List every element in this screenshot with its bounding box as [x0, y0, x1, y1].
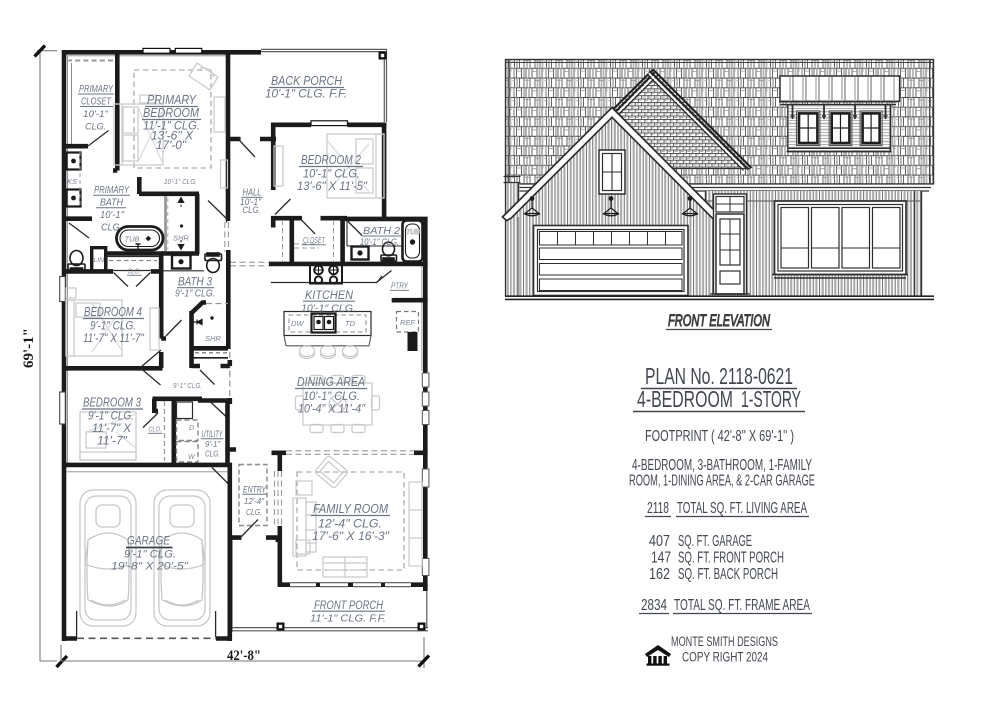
svg-text:10'-4" X 11'-4": 10'-4" X 11'-4" [298, 404, 366, 416]
svg-text:BATH 2: BATH 2 [363, 225, 400, 237]
svg-text:CLO.: CLO. [149, 427, 162, 434]
svg-text:9'-1" CLG.: 9'-1" CLG. [90, 321, 136, 333]
svg-text:11'-7" X: 11'-7" X [92, 423, 132, 435]
svg-text:10'-1" CLG.: 10'-1" CLG. [303, 169, 360, 181]
svg-text:ROOM, 1-DINING AREA, & 2-CAR G: ROOM, 1-DINING AREA, & 2-CAR GARAGE [629, 473, 815, 490]
svg-text:PTRY: PTRY [391, 282, 409, 291]
svg-text:COPY RIGHT 2024: COPY RIGHT 2024 [682, 650, 768, 665]
svg-text:TOTAL SQ. FT. FRAME AREA: TOTAL SQ. FT. FRAME AREA [674, 597, 810, 614]
svg-text:DW: DW [291, 319, 304, 328]
svg-text:SQ. FT. BACK PORCH: SQ. FT. BACK PORCH [678, 566, 778, 583]
svg-text:12'-4" CLG.: 12'-4" CLG. [318, 519, 382, 531]
svg-text:10'-1" CLG.: 10'-1" CLG. [303, 391, 360, 403]
svg-text:FRONT ELEVATION: FRONT ELEVATION [668, 312, 770, 330]
svg-text:FOOTPRINT ( 42'-8'' X 69'-1'': FOOTPRINT ( 42'-8'' X 69'-1'' ) [645, 428, 794, 445]
svg-text:19'-8" X 20'-5": 19'-8" X 20'-5" [111, 561, 189, 573]
svg-text:ENTRY: ENTRY [243, 485, 267, 495]
svg-text:BEDROOM 4: BEDROOM 4 [84, 305, 142, 319]
svg-text:BEDROOM 3: BEDROOM 3 [83, 396, 141, 410]
svg-text:10'-1": 10'-1" [83, 109, 109, 120]
svg-text:BACK PORCH: BACK PORCH [271, 74, 343, 88]
svg-text:CLOSET: CLOSET [81, 97, 112, 108]
svg-text:162: 162 [649, 566, 670, 583]
svg-text:2118: 2118 [647, 500, 669, 517]
svg-text:1-STORY: 1-STORY [741, 386, 801, 412]
svg-text:SHR: SHR [173, 234, 189, 243]
svg-text:BEDROOM 2: BEDROOM 2 [301, 153, 361, 167]
svg-text:FAMILY ROOM: FAMILY ROOM [313, 502, 389, 516]
svg-text:147: 147 [651, 550, 671, 567]
svg-text:GARAGE: GARAGE [127, 536, 170, 548]
svg-text:9'-1" CLG.: 9'-1" CLG. [124, 549, 176, 561]
svg-text:CLG.: CLG. [246, 507, 262, 517]
svg-text:407: 407 [649, 533, 670, 550]
svg-text:PRIMARY: PRIMARY [147, 93, 197, 107]
svg-text:42'-8": 42'-8" [227, 648, 261, 664]
svg-text:9'-1" CLG.: 9'-1" CLG. [173, 381, 202, 390]
svg-text:TUB: TUB [125, 235, 140, 244]
svg-text:2834: 2834 [641, 597, 667, 614]
svg-text:CLO.: CLO. [128, 269, 141, 276]
svg-text:D: D [189, 425, 194, 432]
svg-text:9'-1" CLG.: 9'-1" CLG. [88, 411, 134, 423]
svg-text:17'-0": 17'-0" [156, 140, 187, 152]
svg-text:CLG.: CLG. [205, 450, 220, 459]
svg-text:10'-1" CLG.: 10'-1" CLG. [164, 177, 197, 186]
svg-text:BEDROOM: BEDROOM [143, 106, 200, 120]
svg-text:4-BEDROOM, 3-BATHROOM, 1-FAMIL: 4-BEDROOM, 3-BATHROOM, 1-FAMILY [632, 457, 812, 474]
svg-text:SQ. FT. GARAGE: SQ. FT. GARAGE [678, 533, 752, 550]
svg-text:FRONT PORCH: FRONT PORCH [314, 600, 384, 612]
svg-text:13'-6" X 11'-5": 13'-6" X 11'-5" [297, 181, 368, 193]
svg-text:KS: KS [67, 177, 77, 186]
svg-text:BATH: BATH [100, 197, 123, 209]
svg-text:MONTE SMITH DESIGNS: MONTE SMITH DESIGNS [671, 634, 778, 649]
svg-text:UTILITY: UTILITY [202, 429, 224, 439]
svg-text:9'-1": 9'-1" [205, 440, 221, 449]
svg-text:10'-1" CLG.: 10'-1" CLG. [360, 237, 399, 247]
svg-text:TUB: TUB [406, 229, 420, 236]
svg-text:CLG.: CLG. [85, 122, 106, 133]
svg-text:10'-1": 10'-1" [100, 210, 124, 221]
svg-text:10'-1" CLG. F.F.: 10'-1" CLG. F.F. [265, 89, 347, 101]
svg-text:LIN: LIN [94, 257, 105, 264]
svg-text:69'-1": 69'-1" [21, 328, 37, 368]
svg-text:SQ. FT. FRONT PORCH: SQ. FT. FRONT PORCH [678, 550, 784, 567]
svg-text:REF: REF [400, 318, 415, 327]
svg-text:4-BEDROOM: 4-BEDROOM [637, 386, 733, 412]
svg-text:PRIMARY: PRIMARY [94, 184, 130, 196]
svg-text:PRIMARY: PRIMARY [79, 84, 114, 95]
svg-text:TOTAL SQ. FT. LIVING AREA: TOTAL SQ. FT. LIVING AREA [677, 500, 807, 517]
svg-text:DINING AREA: DINING AREA [297, 375, 365, 389]
svg-text:11'-7" X 11'-7": 11'-7" X 11'-7" [83, 333, 145, 345]
svg-text:CLG.: CLG. [101, 223, 122, 234]
svg-text:TD: TD [345, 319, 356, 328]
svg-text:KITCHEN: KITCHEN [305, 290, 354, 302]
svg-text:12'-4": 12'-4" [244, 496, 265, 506]
svg-text:17'-6" X 16'-3": 17'-6" X 16'-3" [312, 531, 390, 543]
svg-text:CLOSET: CLOSET [303, 236, 326, 245]
svg-text:9'-1" CLG.: 9'-1" CLG. [175, 288, 215, 300]
svg-text:CLG.: CLG. [243, 205, 261, 216]
svg-text:11'-1" CLG. F.F.: 11'-1" CLG. F.F. [310, 614, 386, 625]
svg-text:10'-1" CLG.: 10'-1" CLG. [301, 303, 356, 315]
svg-text:SHR: SHR [205, 334, 221, 343]
svg-text:11'-7": 11'-7" [97, 436, 128, 448]
